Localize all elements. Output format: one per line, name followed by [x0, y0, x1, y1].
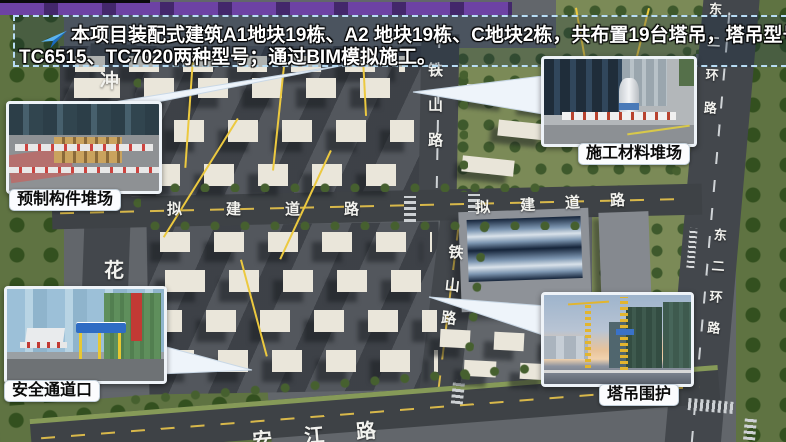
building-row: [72, 78, 412, 98]
callout-label-material-yard: 施工材料堆场: [578, 143, 690, 165]
street-trees: [140, 220, 600, 230]
callout-image-safety-passage: [4, 286, 167, 384]
crosswalk: [451, 379, 465, 404]
top-purple-bar: [0, 2, 512, 15]
road-label-proposed-west: 拟建道路: [167, 198, 403, 219]
industrial-building-annex: [598, 211, 651, 305]
crosswalk: [743, 418, 757, 441]
callout-image-material-yard: [541, 56, 697, 147]
callout-image-precast-yard: [6, 101, 162, 194]
bim-site-plan-slide: 铁山路 铁山路 拟建道路 拟建道路 东二环路 东二环路 冲 花 安江路 本项目装…: [0, 0, 786, 442]
building-row: [150, 350, 438, 372]
road-label-chong: 冲: [100, 66, 119, 93]
crosswalk: [404, 196, 416, 222]
callout-label-precast-yard: 预制构件堆场: [9, 189, 121, 211]
building-row: [152, 310, 437, 332]
street-trees: [458, 60, 468, 192]
top-black-strip: [0, 0, 150, 3]
callout-image-tower-crane-enclosure: [541, 292, 694, 387]
callout-label-tower-crane-enclosure: 塔吊围护: [599, 384, 679, 406]
banner-text-line2: TC6515、TC7020两种型号；通过BIM模拟施工。: [19, 42, 436, 69]
road-label-tieshan-north: 铁山路: [424, 62, 445, 167]
building-row: [160, 232, 432, 252]
building-row: [155, 270, 435, 292]
callout-label-safety-passage: 安全通道口: [4, 380, 100, 402]
road-label-hua: 花: [104, 254, 124, 283]
